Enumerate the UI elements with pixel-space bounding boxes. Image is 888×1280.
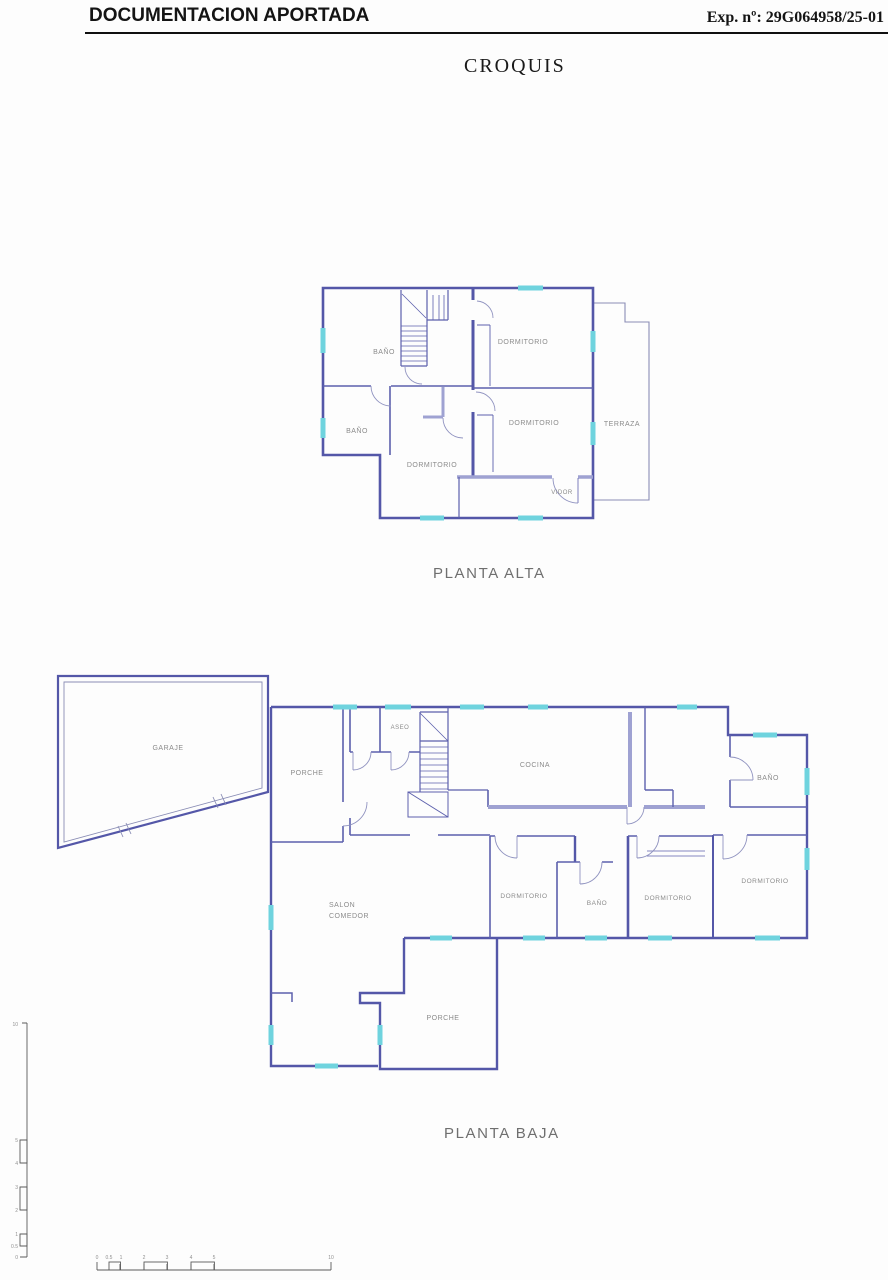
v-scale-label: 5	[15, 1138, 18, 1144]
terraza-outline	[593, 303, 649, 500]
room-label-porche-top: PORCHE	[291, 770, 324, 777]
staircase-icon	[408, 707, 448, 817]
expedient-number: Exp. nº: 29G064958/25-01	[707, 9, 884, 27]
room-label-cocina: COCINA	[520, 762, 550, 769]
room-label-vidor: VIDOR	[551, 490, 573, 496]
v-scale-label: 3	[15, 1185, 18, 1191]
room-label-bano-bottom: BAÑO	[587, 898, 607, 907]
room-label-bano-top: BAÑO	[373, 347, 395, 356]
window-markers	[323, 288, 593, 518]
vertical-scale-bar: 10 5 4 3 2 1 0.5 0	[11, 1022, 27, 1261]
window-markers	[271, 707, 807, 1066]
h-scale-label: 5	[213, 1255, 216, 1261]
room-label-dormitorio-right: DORMITORIO	[741, 878, 788, 885]
room-label-dormitorio-mid: DORMITORIO	[644, 895, 691, 902]
room-label-garaje: GARAJE	[152, 745, 183, 752]
h-scale-label: 4	[190, 1255, 193, 1261]
door-arcs	[343, 752, 753, 884]
h-scale-label: 2	[143, 1255, 146, 1261]
v-scale-label: 0	[15, 1255, 18, 1261]
room-label-dormitorio-bottom: DORMITORIO	[407, 462, 457, 469]
croquis-title: CROQUIS	[464, 55, 566, 78]
h-scale-label: 0	[96, 1255, 99, 1261]
room-label-dormitorio-top: DORMITORIO	[498, 339, 548, 346]
scale-bars: 10 5 4 3 2 1 0.5 0 0 0.5 1 2 3 4	[0, 1012, 345, 1278]
interior-walls	[323, 288, 593, 518]
v-scale-label: 10	[12, 1022, 18, 1028]
horizontal-scale-bar: 0 0.5 1 2 3 4 5 10	[96, 1255, 334, 1270]
v-scale-label: 2	[15, 1208, 18, 1214]
planta-baja-caption: PLANTA BAJA	[444, 1125, 560, 1142]
h-scale-label: 0.5	[106, 1255, 113, 1261]
room-label-salon-line1: SALON	[329, 902, 355, 909]
room-label-bano-mid: BAÑO	[346, 426, 368, 435]
document-page: DOCUMENTACION APORTADA Exp. nº: 29G06495…	[0, 0, 888, 1280]
h-scale-label: 1	[120, 1255, 123, 1261]
room-label-bano-top: BAÑO	[757, 773, 779, 782]
staircase-icon	[401, 290, 448, 366]
header-divider	[85, 32, 888, 34]
h-scale-label: 10	[328, 1255, 334, 1261]
garage-outline	[58, 676, 268, 848]
room-label-aseo: ASEO	[391, 725, 410, 731]
v-scale-label: 4	[15, 1161, 18, 1167]
planta-alta-plan: BAÑO DORMITORIO BAÑO DORMITORIO DORMITOR…	[315, 282, 655, 524]
room-label-salon-line2: COMEDOR	[329, 913, 369, 920]
room-label-dormitorio-mid: DORMITORIO	[509, 420, 559, 427]
planta-alta-caption: PLANTA ALTA	[433, 565, 546, 582]
v-scale-label: 0.5	[11, 1244, 18, 1250]
room-label-terraza: TERRAZA	[604, 421, 640, 428]
h-scale-label: 3	[166, 1255, 169, 1261]
room-label-porche-bottom: PORCHE	[427, 1015, 460, 1022]
v-scale-label: 1	[15, 1232, 18, 1238]
outer-walls	[323, 288, 593, 518]
room-label-dormitorio-left: DORMITORIO	[500, 893, 547, 900]
page-title: DOCUMENTACION APORTADA	[89, 5, 369, 27]
